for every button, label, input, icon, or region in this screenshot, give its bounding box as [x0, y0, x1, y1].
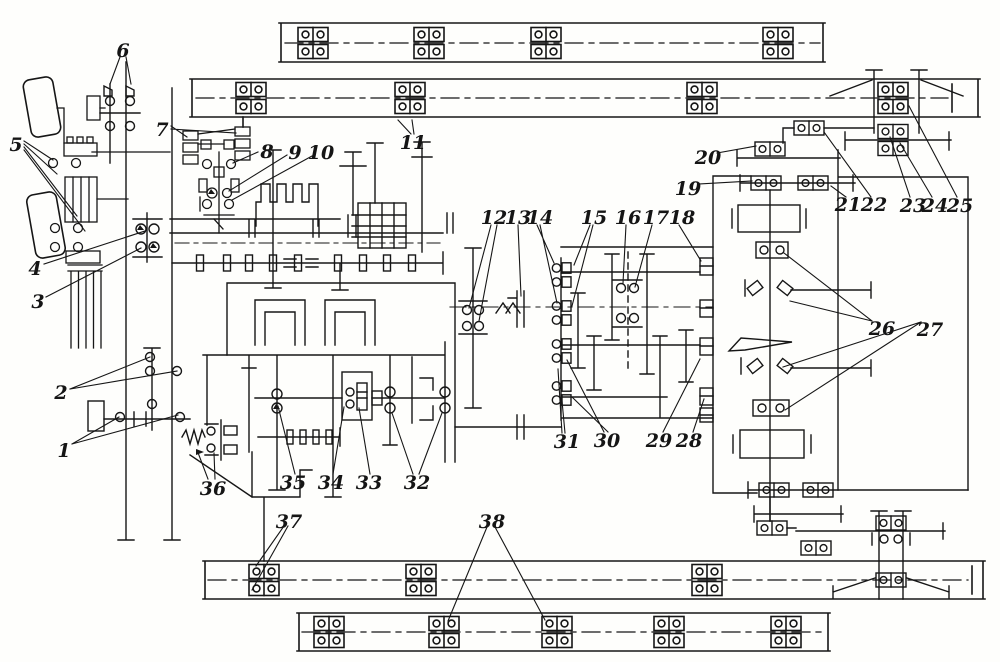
svg-text:15: 15 — [581, 207, 607, 229]
callout-14: 14 — [527, 207, 557, 303]
callout-32: 32 — [392, 413, 442, 494]
callout-15: 15 — [572, 207, 607, 306]
lower-roller — [740, 430, 804, 458]
left-guide-plates — [22, 76, 66, 259]
left-feed-column — [49, 96, 171, 348]
svg-text:2: 2 — [53, 382, 67, 404]
svg-text:37: 37 — [276, 511, 302, 533]
svg-text:12: 12 — [481, 207, 507, 229]
callout-1: 1 — [57, 415, 178, 462]
callout-6: 6 — [110, 40, 131, 84]
bottom-right-train — [748, 482, 968, 599]
svg-text:20: 20 — [694, 147, 721, 169]
svg-text:32: 32 — [404, 472, 430, 494]
svg-text:8: 8 — [259, 141, 273, 163]
svg-text:28: 28 — [675, 430, 702, 452]
callout-28: 28 — [675, 399, 704, 452]
callouts: 1 2 3 4 5 6 7 8 9 10 11 12 13 14 15 16 1… — [9, 40, 973, 621]
callout-12: 12 — [469, 207, 507, 321]
svg-text:27: 27 — [916, 319, 943, 341]
callout-5: 5 — [9, 134, 85, 231]
svg-text:36: 36 — [200, 478, 226, 500]
callout-35: 35 — [278, 406, 306, 494]
svg-text:35: 35 — [280, 472, 306, 494]
svg-text:33: 33 — [356, 472, 382, 494]
svg-text:6: 6 — [116, 40, 129, 62]
diagram-canvas: 1 2 3 4 5 6 7 8 9 10 11 12 13 14 15 16 1… — [0, 0, 1000, 662]
svg-text:10: 10 — [308, 142, 334, 164]
svg-text:16: 16 — [615, 207, 641, 229]
svg-text:24: 24 — [921, 195, 948, 217]
svg-text:18: 18 — [669, 207, 695, 229]
callout-27: 27 — [783, 319, 943, 410]
svg-text:34: 34 — [318, 472, 344, 494]
callout-38: 38 — [448, 511, 545, 621]
callout-21: 21 — [831, 186, 861, 216]
upper-roller — [738, 205, 800, 232]
callout-26: 26 — [784, 253, 895, 340]
svg-text:22: 22 — [860, 194, 887, 216]
svg-text:9: 9 — [288, 142, 301, 164]
svg-text:7: 7 — [155, 119, 168, 141]
callout-36: 36 — [197, 450, 226, 500]
callout-11: 11 — [398, 120, 426, 154]
svg-text:38: 38 — [479, 511, 505, 533]
svg-text:5: 5 — [9, 134, 22, 156]
callout-34: 34 — [318, 407, 344, 494]
svg-text:29: 29 — [645, 430, 672, 452]
svg-text:4: 4 — [28, 258, 41, 280]
callout-2: 2 — [53, 357, 177, 404]
top-rail-2 — [190, 79, 980, 127]
svg-text:11: 11 — [400, 132, 426, 154]
selector-cluster — [183, 127, 250, 233]
bottom-rail-2 — [297, 613, 830, 651]
stator-enclosure — [227, 283, 455, 462]
svg-text:19: 19 — [675, 178, 701, 200]
lower-gearbox — [88, 342, 450, 561]
svg-text:31: 31 — [554, 431, 580, 453]
svg-text:25: 25 — [946, 195, 973, 217]
blade — [729, 338, 792, 351]
spring-symbol — [182, 430, 205, 444]
svg-text:1: 1 — [57, 440, 70, 462]
callout-18: 18 — [669, 207, 701, 261]
svg-text:17: 17 — [643, 207, 669, 229]
svg-text:26: 26 — [868, 318, 895, 340]
svg-text:3: 3 — [31, 291, 44, 313]
svg-text:21: 21 — [834, 194, 861, 216]
callout-33: 33 — [356, 408, 382, 494]
svg-text:14: 14 — [527, 207, 553, 229]
kinematic-diagram-page: 1 2 3 4 5 6 7 8 9 10 11 12 13 14 15 16 1… — [0, 0, 1000, 662]
top-rail-1 — [279, 23, 825, 62]
svg-text:30: 30 — [594, 430, 620, 452]
